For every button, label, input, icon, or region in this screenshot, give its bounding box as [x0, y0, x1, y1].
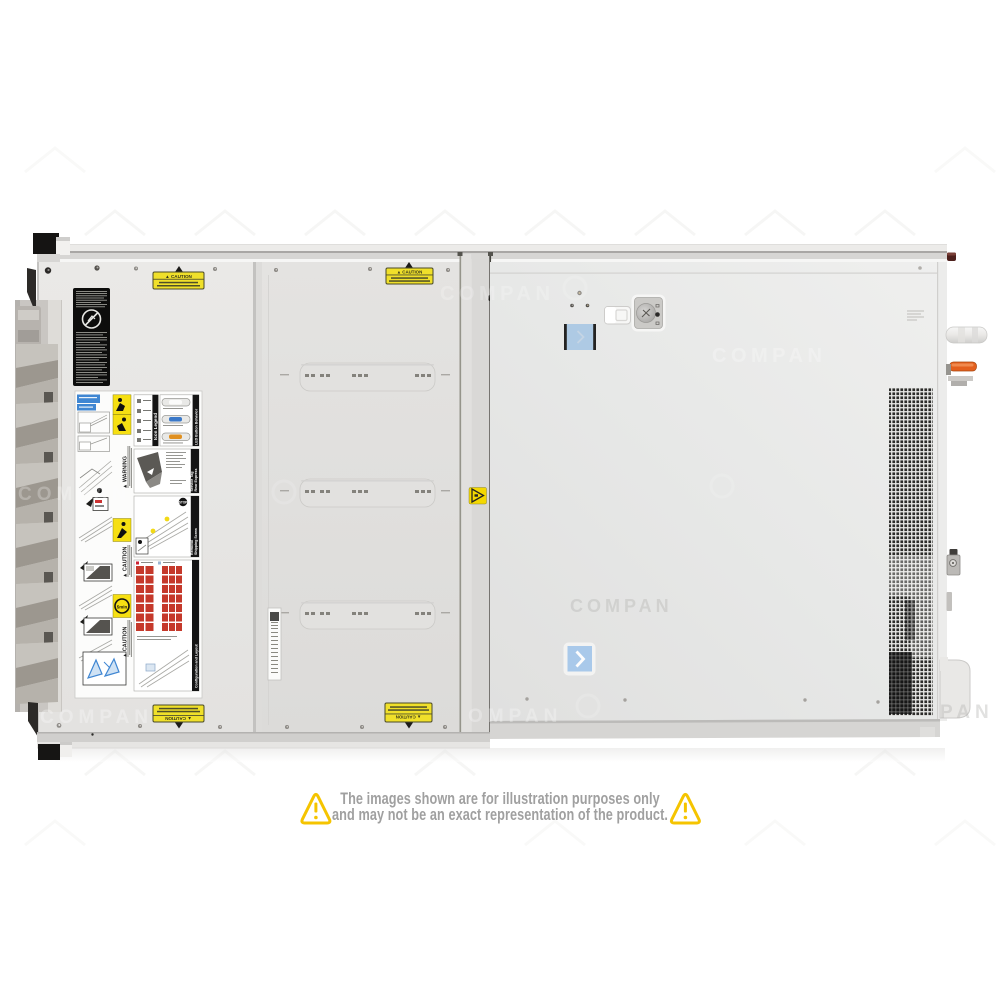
- svg-text:COMPAN: COMPAN: [40, 707, 153, 728]
- svg-text:Configuration and Layout: Configuration and Layout: [194, 643, 198, 688]
- svg-text:LED Button Behavior: LED Button Behavior: [194, 408, 198, 445]
- svg-text:Icon Legend: Icon Legend: [153, 413, 158, 440]
- svg-text:▲ CAUTION: ▲ CAUTION: [396, 715, 422, 720]
- svg-text:▲ CAUTION: ▲ CAUTION: [164, 716, 191, 721]
- svg-text:COMPAN: COMPAN: [570, 596, 673, 616]
- svg-text:COMPAN: COMPAN: [18, 484, 131, 505]
- svg-text:Rear Express: Rear Express: [194, 469, 198, 492]
- svg-text:5min: 5min: [117, 604, 128, 609]
- svg-text:PAN: PAN: [940, 702, 994, 723]
- svg-text:▲ CAUTION: ▲ CAUTION: [165, 274, 192, 279]
- svg-text:▲ CAUTION: ▲ CAUTION: [397, 270, 423, 275]
- svg-text:OMPAN: OMPAN: [468, 706, 562, 727]
- svg-text:Service Tag: Service Tag: [190, 472, 194, 492]
- svg-text:COMPAN: COMPAN: [712, 345, 826, 367]
- svg-text:Removal: Removal: [190, 540, 194, 555]
- svg-text:STOP: STOP: [179, 501, 188, 505]
- svg-text:Shipping Screw: Shipping Screw: [194, 528, 198, 555]
- svg-text:COMPAN: COMPAN: [440, 283, 554, 305]
